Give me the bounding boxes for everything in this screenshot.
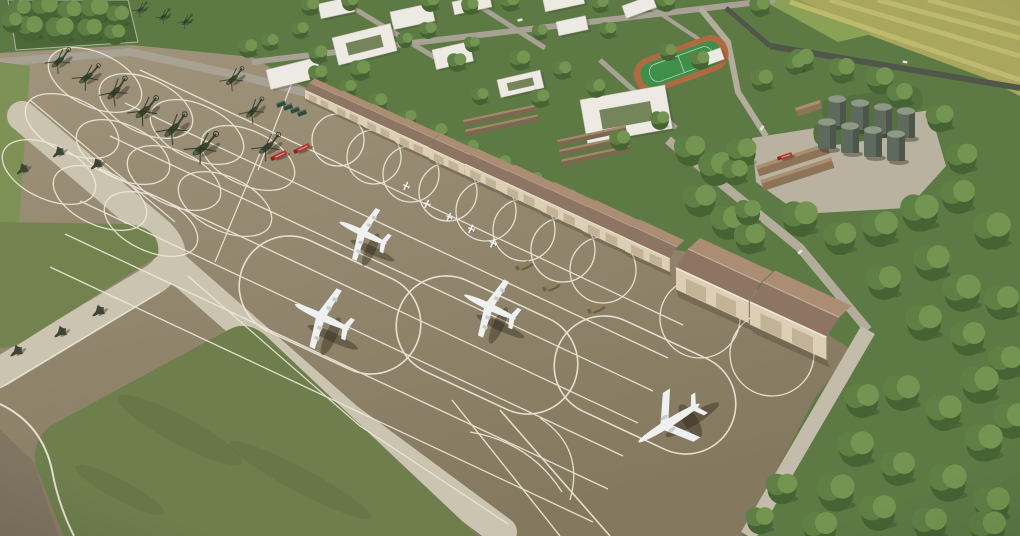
vignette-overlay	[0, 0, 1020, 536]
airbase-render	[0, 0, 1020, 536]
scene-canvas	[0, 0, 1020, 536]
